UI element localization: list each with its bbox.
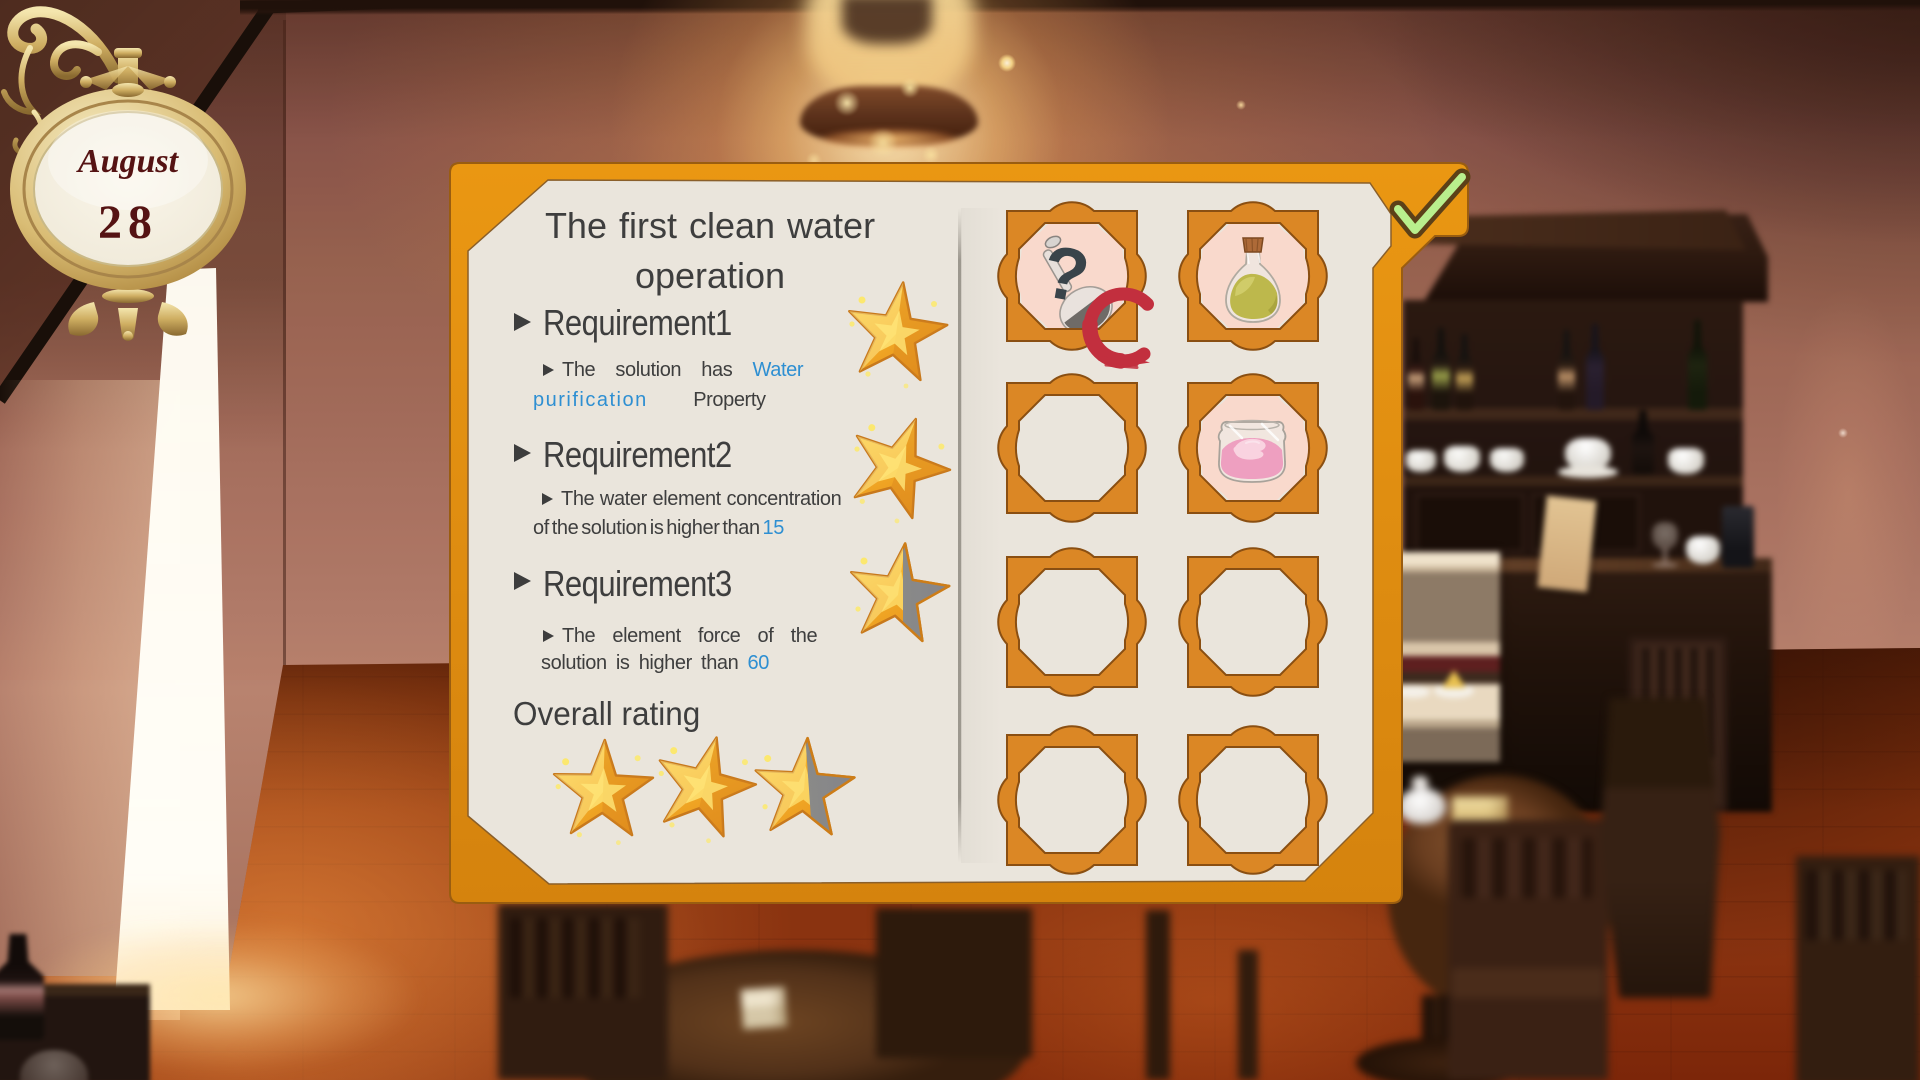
svg-text:August: August: [76, 143, 180, 180]
svg-text:28: 28: [98, 196, 158, 249]
